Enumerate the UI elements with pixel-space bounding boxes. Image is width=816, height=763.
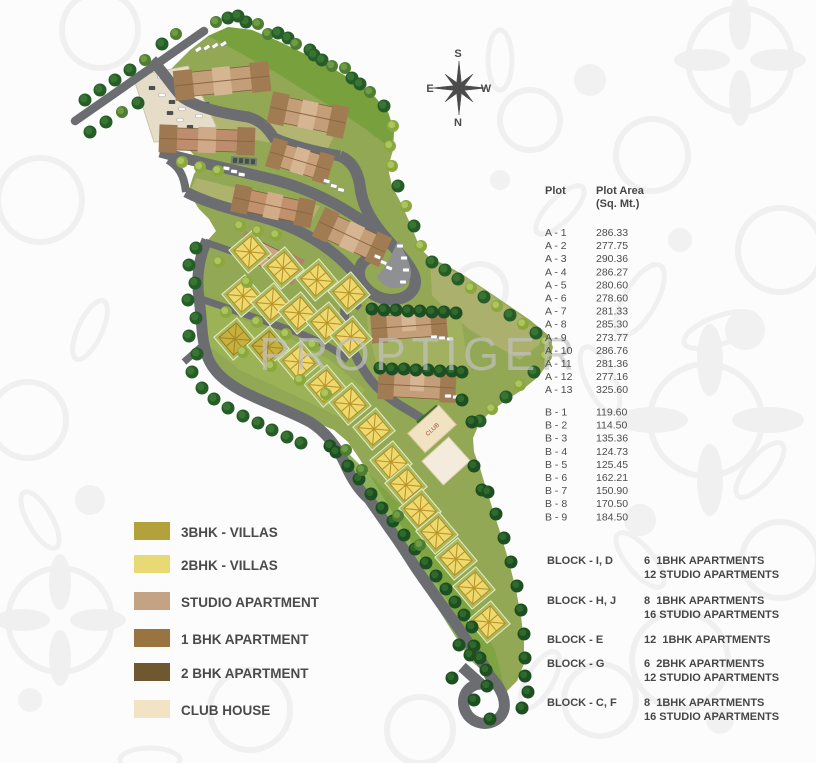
svg-text:(Sq. Mt.): (Sq. Mt.) xyxy=(596,198,640,210)
svg-text:B - 4: B - 4 xyxy=(545,446,567,458)
svg-text:285.30: 285.30 xyxy=(596,319,628,331)
svg-text:B - 7: B - 7 xyxy=(545,485,567,497)
svg-text:B - 2: B - 2 xyxy=(545,420,567,432)
svg-text:A - 4: A - 4 xyxy=(545,266,567,278)
svg-text:12 1BHK APARTMENTS: 12 1BHK APARTMENTS xyxy=(644,634,771,646)
svg-text:A - 12: A - 12 xyxy=(545,371,573,383)
svg-text:A - 8: A - 8 xyxy=(545,319,567,331)
svg-text:A - 5: A - 5 xyxy=(545,279,567,291)
svg-text:BLOCK - I, D: BLOCK - I, D xyxy=(547,555,613,567)
svg-text:A - 10: A - 10 xyxy=(545,345,573,357)
svg-text:A - 9: A - 9 xyxy=(545,332,567,344)
svg-text:16 STUDIO APARTMENTS: 16 STUDIO APARTMENTS xyxy=(644,711,779,723)
svg-text:B - 3: B - 3 xyxy=(545,433,567,445)
svg-text:A - 7: A - 7 xyxy=(545,306,567,318)
svg-text:2 BHK APARTMENT: 2 BHK APARTMENT xyxy=(181,666,309,681)
svg-text:8 1BHK APARTMENTS: 8 1BHK APARTMENTS xyxy=(644,697,764,709)
svg-text:162.21: 162.21 xyxy=(596,472,628,484)
svg-text:A - 11: A - 11 xyxy=(545,358,572,370)
svg-text:1 BHK APARTMENT: 1 BHK APARTMENT xyxy=(181,632,309,647)
svg-text:124.73: 124.73 xyxy=(596,446,628,458)
svg-text:A - 1: A - 1 xyxy=(545,227,567,239)
svg-text:278.60: 278.60 xyxy=(596,293,628,305)
svg-text:6 1BHK APARTMENTS: 6 1BHK APARTMENTS xyxy=(644,555,764,567)
svg-text:8 1BHK APARTMENTS: 8 1BHK APARTMENTS xyxy=(644,595,764,607)
svg-text:12 STUDIO APARTMENTS: 12 STUDIO APARTMENTS xyxy=(644,672,779,684)
svg-text:170.50: 170.50 xyxy=(596,498,628,510)
svg-text:125.45: 125.45 xyxy=(596,459,628,471)
svg-text:150.90: 150.90 xyxy=(596,485,628,497)
svg-text:STUDIO APARTMENT: STUDIO APARTMENT xyxy=(181,595,320,610)
svg-text:281.36: 281.36 xyxy=(596,358,628,370)
svg-text:280.60: 280.60 xyxy=(596,279,628,291)
svg-text:Plot: Plot xyxy=(545,185,566,197)
svg-text:PROPTIGER: PROPTIGER xyxy=(259,328,579,380)
svg-text:290.36: 290.36 xyxy=(596,253,628,265)
svg-text:A - 6: A - 6 xyxy=(545,293,567,305)
svg-text:16 STUDIO APARTMENTS: 16 STUDIO APARTMENTS xyxy=(644,609,779,621)
svg-text:277.75: 277.75 xyxy=(596,240,628,252)
svg-text:B - 1: B - 1 xyxy=(545,407,567,419)
svg-text:BLOCK - E: BLOCK - E xyxy=(547,634,603,646)
svg-text:B - 6: B - 6 xyxy=(545,472,567,484)
svg-text:12 STUDIO APARTMENTS: 12 STUDIO APARTMENTS xyxy=(644,569,779,581)
svg-text:325.60: 325.60 xyxy=(596,384,628,396)
svg-text:BLOCK - C, F: BLOCK - C, F xyxy=(547,697,617,709)
svg-text:W: W xyxy=(481,83,492,95)
svg-text:6 2BHK APARTMENTS: 6 2BHK APARTMENTS xyxy=(644,658,764,670)
svg-text:Plot Area: Plot Area xyxy=(596,185,645,197)
svg-text:S: S xyxy=(454,48,461,60)
svg-text:A - 3: A - 3 xyxy=(545,253,567,265)
svg-text:119.60: 119.60 xyxy=(596,407,627,419)
svg-text:B - 5: B - 5 xyxy=(545,459,567,471)
svg-text:277.16: 277.16 xyxy=(596,371,628,383)
svg-text:273.77: 273.77 xyxy=(596,332,628,344)
svg-text:286.76: 286.76 xyxy=(596,345,628,357)
svg-text:3BHK - VILLAS: 3BHK - VILLAS xyxy=(181,525,278,540)
svg-text:286.33: 286.33 xyxy=(596,227,628,239)
svg-text:A - 13: A - 13 xyxy=(545,384,573,396)
svg-text:281.33: 281.33 xyxy=(596,306,628,318)
svg-text:BLOCK - G: BLOCK - G xyxy=(547,658,604,670)
svg-text:135.36: 135.36 xyxy=(596,433,628,445)
svg-text:B - 8: B - 8 xyxy=(545,498,567,510)
svg-text:BLOCK - H, J: BLOCK - H, J xyxy=(547,595,616,607)
svg-text:114.50: 114.50 xyxy=(596,420,627,432)
svg-text:2BHK - VILLAS: 2BHK - VILLAS xyxy=(181,558,278,573)
svg-text:286.27: 286.27 xyxy=(596,266,628,278)
svg-text:N: N xyxy=(454,117,462,129)
svg-text:CLUB HOUSE: CLUB HOUSE xyxy=(181,703,270,718)
svg-text:E: E xyxy=(426,83,433,95)
svg-text:A - 2: A - 2 xyxy=(545,240,567,252)
svg-text:184.50: 184.50 xyxy=(596,511,628,523)
svg-text:B - 9: B - 9 xyxy=(545,511,567,523)
